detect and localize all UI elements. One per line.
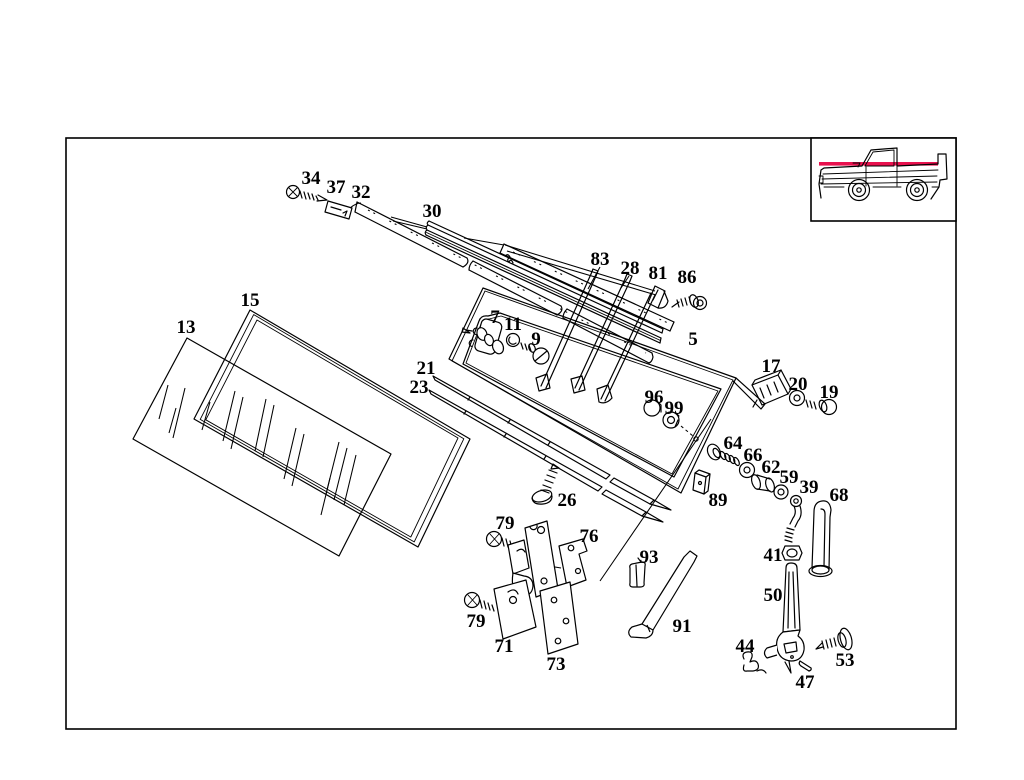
- svg-text:64: 64: [724, 433, 744, 454]
- svg-text:21: 21: [417, 358, 436, 379]
- svg-text:86: 86: [678, 267, 697, 288]
- svg-text:47: 47: [796, 672, 816, 693]
- svg-text:79: 79: [496, 513, 515, 534]
- svg-text:23: 23: [410, 377, 429, 398]
- svg-text:17: 17: [762, 356, 782, 377]
- svg-text:37: 37: [327, 177, 347, 198]
- svg-text:7: 7: [490, 307, 500, 328]
- svg-text:28: 28: [621, 258, 640, 279]
- svg-text:26: 26: [558, 490, 577, 511]
- svg-text:79: 79: [467, 611, 486, 632]
- svg-text:81: 81: [649, 263, 668, 284]
- svg-text:15: 15: [241, 290, 260, 311]
- svg-text:39: 39: [800, 477, 819, 498]
- svg-text:62: 62: [762, 457, 781, 478]
- svg-text:11: 11: [504, 314, 522, 335]
- svg-text:83: 83: [591, 249, 610, 270]
- svg-text:93: 93: [640, 547, 659, 568]
- svg-text:76: 76: [580, 526, 599, 547]
- svg-text:71: 71: [495, 636, 514, 657]
- svg-text:13: 13: [177, 317, 196, 338]
- svg-text:32: 32: [352, 182, 371, 203]
- svg-text:91: 91: [673, 616, 692, 637]
- svg-text:53: 53: [836, 650, 855, 671]
- svg-text:41: 41: [764, 545, 783, 566]
- svg-text:66: 66: [744, 445, 763, 466]
- svg-text:99: 99: [665, 398, 684, 419]
- svg-text:5: 5: [688, 329, 698, 350]
- svg-text:34: 34: [302, 168, 322, 189]
- svg-text:19: 19: [820, 382, 839, 403]
- svg-text:89: 89: [709, 490, 728, 511]
- svg-text:73: 73: [547, 654, 566, 675]
- svg-text:30: 30: [423, 201, 442, 222]
- svg-text:20: 20: [789, 374, 808, 395]
- svg-text:50: 50: [764, 585, 783, 606]
- svg-text:59: 59: [780, 467, 799, 488]
- svg-text:96: 96: [645, 387, 664, 408]
- svg-text:68: 68: [830, 485, 849, 506]
- svg-text:9: 9: [531, 329, 541, 350]
- svg-text:44: 44: [736, 636, 756, 657]
